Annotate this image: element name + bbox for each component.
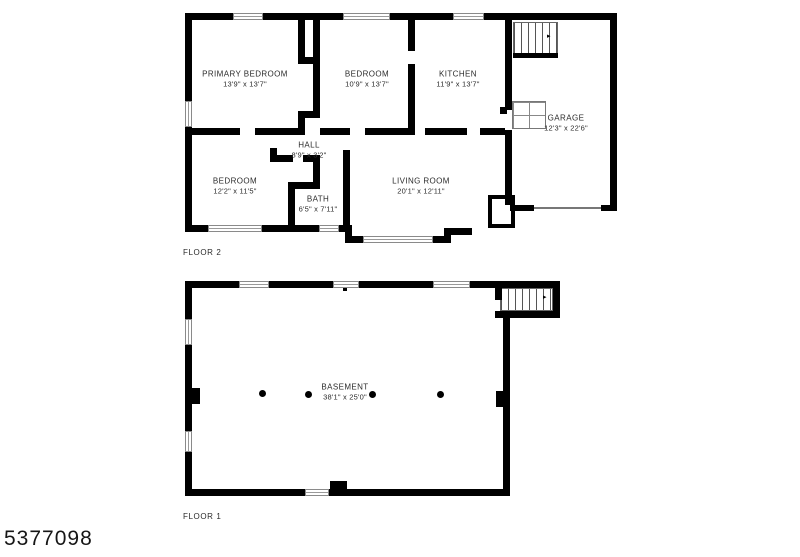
window	[363, 236, 433, 243]
wall-segment	[513, 53, 558, 58]
wall-segment	[495, 311, 560, 318]
wall-segment	[505, 130, 512, 205]
wall-segment	[255, 128, 298, 135]
wall-segment	[288, 182, 320, 189]
wall-nub	[496, 391, 503, 407]
wall-segment	[185, 128, 240, 135]
stair-direction-arrow-icon: ▸	[547, 33, 551, 40]
room-name: BEDROOM	[345, 70, 389, 79]
window	[453, 13, 484, 20]
mls-number: 5377098	[4, 527, 93, 551]
support-column	[305, 391, 312, 398]
window	[319, 225, 339, 232]
room-dims: 6'5" x 7'11"	[299, 205, 338, 214]
room-dims: 11'9" x 13'7"	[436, 80, 479, 89]
room-label-garage: GARAGE 12'3" x 22'6"	[544, 114, 588, 133]
wall-segment	[320, 128, 350, 135]
room-label-kitchen: KITCHEN 11'9" x 13'7"	[436, 70, 479, 89]
window	[185, 101, 192, 127]
wall-segment	[313, 64, 320, 118]
room-name: BEDROOM	[213, 177, 257, 186]
room-dims: 10'9" x 13'7"	[345, 80, 389, 89]
wall-segment	[408, 20, 415, 51]
room-name: LIVING ROOM	[392, 177, 450, 186]
wall-segment	[601, 205, 617, 211]
support-column	[369, 391, 376, 398]
wall-segment	[298, 57, 320, 64]
room-name: BATH	[299, 195, 338, 204]
wall-segment	[480, 128, 505, 135]
wall-segment	[505, 20, 512, 110]
room-dims: 8'9" x 3'2"	[292, 151, 327, 160]
window	[433, 281, 470, 288]
window	[333, 281, 359, 288]
room-label-bath: BATH 6'5" x 7'11"	[299, 195, 338, 214]
floorplan-canvas: ▸ PRIMARY BEDROOM 13'9" x 13'7" BEDROOM …	[0, 0, 800, 557]
wall-segment	[185, 489, 510, 496]
room-label-living-room: LIVING ROOM 20'1" x 12'11"	[392, 177, 450, 196]
floor2-caption: FLOOR 2	[183, 248, 221, 257]
entry-steps	[512, 101, 546, 129]
window	[343, 13, 390, 20]
room-dims: 20'1" x 12'11"	[392, 187, 450, 196]
wall-segment	[185, 281, 192, 496]
window	[185, 431, 192, 452]
wall-segment	[298, 118, 305, 135]
support-column	[259, 390, 266, 397]
room-dims: 12'2" x 11'5"	[213, 187, 257, 196]
room-dims: 38'1" x 25'0"	[321, 393, 368, 402]
plan-floor1: ▸ BASEMENT 38'1" x 25'0"	[185, 281, 560, 497]
wall-nub	[192, 388, 200, 404]
plan-floor2: ▸ PRIMARY BEDROOM 13'9" x 13'7" BEDROOM …	[185, 13, 617, 245]
window	[239, 281, 269, 288]
wall-segment	[510, 205, 534, 211]
wall-segment	[408, 64, 415, 135]
chimney	[330, 481, 347, 489]
wall-segment	[273, 155, 293, 162]
wall-segment	[425, 128, 467, 135]
room-label-hall: HALL 8'9" x 3'2"	[292, 141, 327, 160]
room-label-basement: BASEMENT 38'1" x 25'0"	[321, 383, 368, 402]
wall-segment	[444, 228, 472, 235]
window	[305, 489, 329, 496]
garage-door-line	[534, 207, 601, 209]
door-mark	[500, 107, 507, 114]
room-name: PRIMARY BEDROOM	[202, 70, 288, 79]
room-dims: 12'3" x 22'6"	[544, 124, 588, 133]
room-label-bedroom3: BEDROOM 12'2" x 11'5"	[213, 177, 257, 196]
room-name: HALL	[292, 141, 327, 150]
window	[185, 319, 192, 345]
window	[233, 13, 263, 20]
room-name: BASEMENT	[321, 383, 368, 392]
staircase	[513, 22, 558, 55]
room-name: GARAGE	[544, 114, 588, 123]
room-dims: 13'9" x 13'7"	[202, 80, 288, 89]
wall-segment	[343, 150, 350, 225]
wall-segment	[288, 189, 295, 225]
room-name: KITCHEN	[436, 70, 479, 79]
room-label-primary-bedroom: PRIMARY BEDROOM 13'9" x 13'7"	[202, 70, 288, 89]
window	[208, 225, 262, 232]
stair-direction-arrow-icon: ▸	[543, 294, 547, 301]
wall-segment	[503, 318, 510, 496]
wall-segment	[365, 128, 408, 135]
wall-segment	[495, 288, 502, 300]
wall-segment	[298, 111, 320, 118]
door-mark	[343, 288, 347, 291]
support-column	[437, 391, 444, 398]
wall-segment	[610, 13, 617, 211]
floor1-caption: FLOOR 1	[183, 512, 221, 521]
room-label-bedroom2: BEDROOM 10'9" x 13'7"	[345, 70, 389, 89]
